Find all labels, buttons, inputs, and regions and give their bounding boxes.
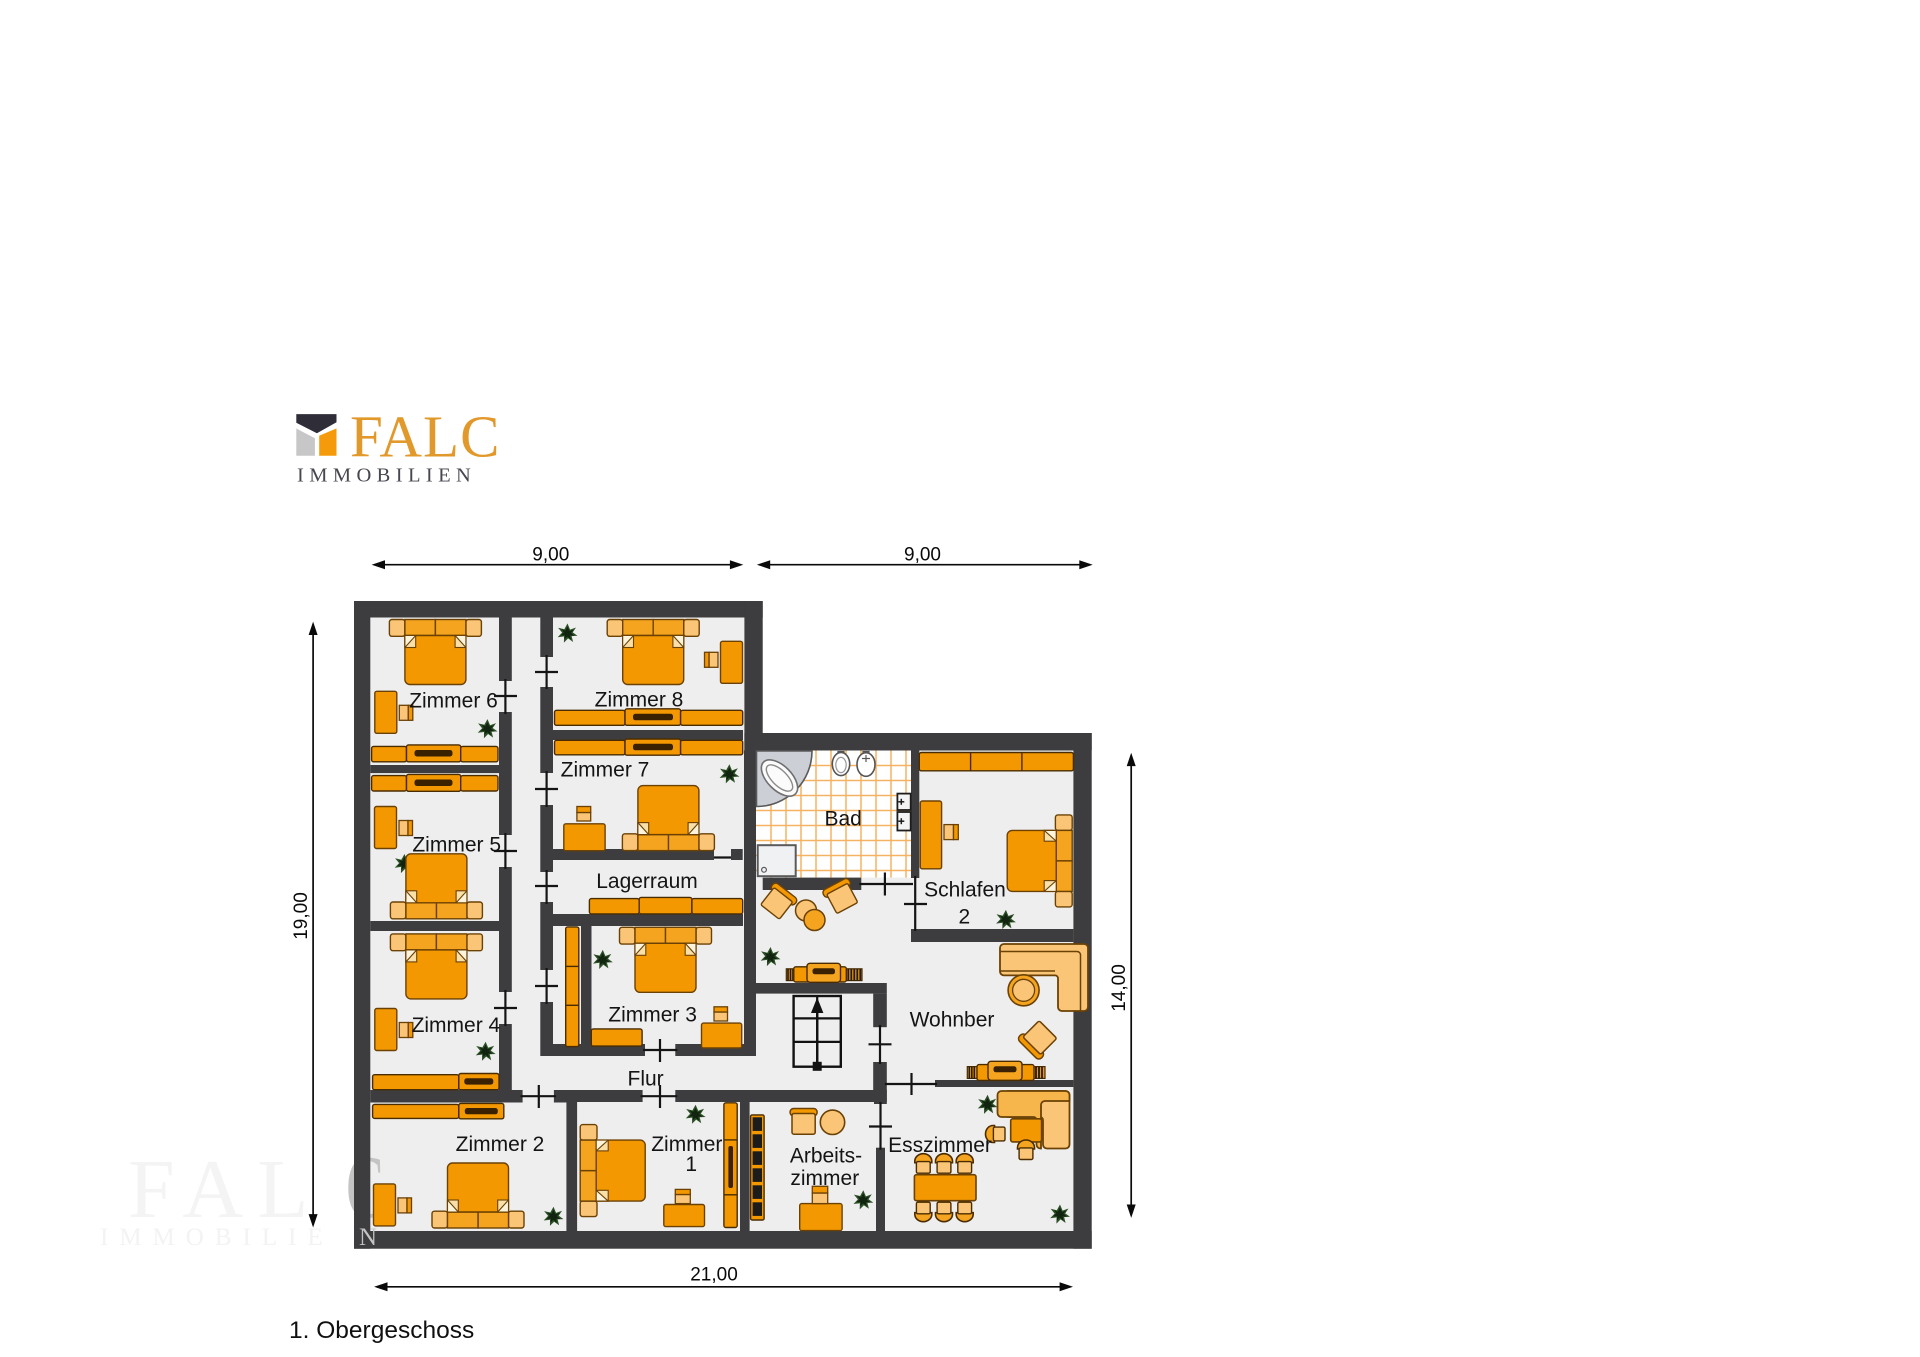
svg-text:1. Obergeschoss: 1. Obergeschoss bbox=[289, 1317, 474, 1344]
svg-text:Flur: Flur bbox=[628, 1068, 664, 1091]
svg-text:Zimmer 6: Zimmer 6 bbox=[409, 690, 498, 713]
svg-text:FAL: FAL bbox=[128, 1143, 322, 1236]
svg-text:9,00: 9,00 bbox=[904, 545, 941, 566]
svg-text:Zimmer 4: Zimmer 4 bbox=[412, 1014, 501, 1037]
svg-text:Zimmer 5: Zimmer 5 bbox=[412, 834, 501, 857]
svg-text:IMMOBILIEN: IMMOBILIEN bbox=[297, 465, 476, 487]
svg-text:Bad: Bad bbox=[825, 808, 862, 831]
svg-text:Esszimmer: Esszimmer bbox=[888, 1134, 992, 1157]
svg-text:2: 2 bbox=[959, 906, 971, 929]
svg-text:Schlafen: Schlafen bbox=[924, 879, 1006, 902]
svg-text:Wohnber: Wohnber bbox=[910, 1009, 995, 1032]
svg-text:21,00: 21,00 bbox=[690, 1265, 738, 1286]
svg-text:N: N bbox=[359, 1224, 377, 1251]
svg-text:Zimmer 2: Zimmer 2 bbox=[456, 1133, 545, 1156]
svg-text:Zimmer 8: Zimmer 8 bbox=[595, 689, 684, 712]
svg-text:9,00: 9,00 bbox=[532, 545, 569, 566]
svg-text:Lagerraum: Lagerraum bbox=[596, 870, 698, 893]
svg-text:1: 1 bbox=[685, 1153, 697, 1176]
svg-text:FALC: FALC bbox=[350, 404, 500, 470]
svg-text:Arbeits-: Arbeits- bbox=[790, 1145, 862, 1168]
svg-text:19,00: 19,00 bbox=[291, 892, 312, 940]
svg-text:IMMOBILIE: IMMOBILIE bbox=[100, 1224, 334, 1251]
svg-text:Zimmer 3: Zimmer 3 bbox=[608, 1004, 697, 1027]
svg-text:zimmer: zimmer bbox=[790, 1167, 859, 1190]
svg-text:14,00: 14,00 bbox=[1109, 964, 1130, 1012]
svg-text:Zimmer 7: Zimmer 7 bbox=[561, 759, 650, 782]
